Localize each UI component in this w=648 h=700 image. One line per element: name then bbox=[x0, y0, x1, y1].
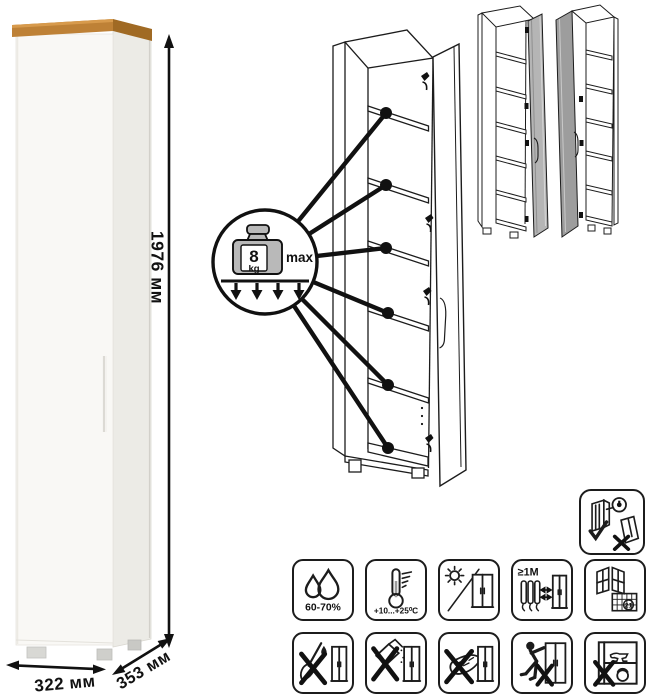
cabinet-door-front bbox=[16, 34, 113, 645]
ventilation-calendar-icon: 21 bbox=[584, 559, 646, 621]
wardrobe-glyph bbox=[331, 647, 347, 681]
temperature-icon: +10...+25⁰C bbox=[365, 559, 427, 621]
height-dimension-label: 1976 мм bbox=[147, 213, 168, 323]
no-scouring-pad-icon bbox=[438, 632, 500, 694]
cabinet-side-face bbox=[113, 29, 151, 647]
product-infographic: 1976 мм 322 мм 353 мм bbox=[0, 0, 648, 700]
double-arrows bbox=[541, 588, 551, 600]
door-handle-groove bbox=[104, 356, 106, 432]
wardrobe-glyph bbox=[552, 576, 567, 608]
shelves bbox=[368, 106, 429, 403]
heat-distance-icon: ≥1М bbox=[511, 559, 573, 621]
cross-mark bbox=[374, 649, 397, 680]
temperature-label: +10...+25⁰C bbox=[374, 606, 418, 615]
variant-right-door bbox=[478, 6, 548, 238]
shelf-dots bbox=[380, 107, 394, 454]
wardrobe-glyph bbox=[403, 647, 420, 681]
variant-left-door bbox=[556, 5, 618, 237]
no-overload-icon bbox=[584, 632, 646, 694]
load-limit-callout: 8 kg max bbox=[213, 210, 317, 314]
kettlebell-glyph bbox=[617, 669, 628, 681]
open-window-glyph bbox=[597, 568, 624, 594]
cabinet-variants-diagram bbox=[470, 0, 648, 250]
water-drop-large bbox=[319, 570, 339, 599]
radiator-glyph bbox=[521, 581, 539, 611]
variant-b-hinges bbox=[579, 96, 584, 218]
cabinet-open-door bbox=[433, 44, 466, 486]
humidity-label: 60-70% bbox=[305, 603, 341, 614]
load-max-text: max bbox=[286, 250, 314, 265]
no-sharp-tools-icon bbox=[292, 632, 354, 694]
person-figure bbox=[521, 642, 544, 679]
sun-glyph bbox=[446, 567, 464, 585]
open-cabinet-diagram: 8 kg max bbox=[200, 0, 480, 540]
airing-day-label: 21 bbox=[625, 602, 633, 609]
no-direct-sunlight-icon bbox=[438, 559, 500, 621]
product-photo bbox=[0, 0, 200, 700]
wardrobe-glyph bbox=[477, 647, 493, 681]
no-pushing-icon bbox=[511, 632, 573, 694]
load-unit-text: kg bbox=[248, 264, 259, 275]
distance-label: ≥1М bbox=[518, 567, 539, 579]
humidity-icon: 60-70% bbox=[292, 559, 354, 621]
wardrobe-glyph bbox=[472, 575, 494, 607]
anti-tip-anchor-icon bbox=[579, 489, 645, 555]
no-abrasive-powder-icon bbox=[365, 632, 427, 694]
height-dimension-arrow bbox=[164, 34, 174, 648]
